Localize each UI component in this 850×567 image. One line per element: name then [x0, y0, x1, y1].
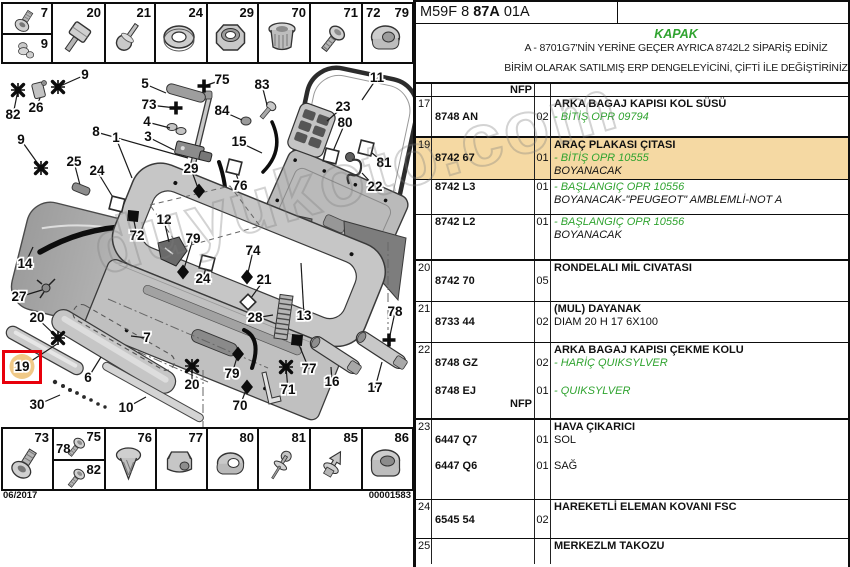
quantity: 01: [535, 215, 551, 259]
desc-line: HAREKETLİ ELEMAN KOVANI FSC: [554, 501, 848, 514]
desc-line: MERKEZLM TAKOZU: [554, 540, 848, 553]
description: RONDELALI MİL CIVATASI: [551, 261, 848, 301]
quantity: 02: [535, 302, 551, 342]
parts-row-8748-EJ[interactable]: 8748 EJNFP01- QUIKSYLVER: [416, 384, 848, 420]
callout-79[interactable]: 79: [185, 231, 200, 246]
callout-25[interactable]: 25: [66, 154, 82, 169]
desc-line: BOYANACAK-"PEUGEOT" AMBLEMLİ-NOT A: [554, 194, 848, 207]
part-number: 8742 67: [432, 138, 535, 179]
sheet-number: 00001583: [369, 490, 411, 501]
parts-table: NFP178748 AN02ARKA BAGAJ KAPISI KOL SÜSÜ…: [416, 84, 848, 564]
desc-line: (MUL) DAYANAK: [554, 303, 848, 316]
part-number: 8742 L2: [432, 215, 535, 259]
fastener-label-29: 29: [240, 5, 254, 20]
star-marker-icon: [279, 360, 293, 374]
callout-12[interactable]: 12: [156, 212, 171, 227]
parts-row-6447-Q6[interactable]: 6447 Q601SAĞ: [416, 459, 848, 500]
ref-number: [416, 384, 432, 418]
upper-small-arc: [263, 122, 277, 172]
part-number: 8742 L3: [432, 180, 535, 214]
ref-number: 25: [416, 539, 432, 564]
callout-9[interactable]: 9: [81, 67, 89, 82]
desc-line: RONDELALI MİL CIVATASI: [554, 262, 848, 275]
bushing-icon: [372, 450, 400, 476]
quantity: 01: [535, 138, 551, 179]
description: ARKA BAGAJ KAPISI KOL SÜSÜ- BİTİŞ OPR 09…: [551, 97, 848, 136]
fastener-label-7: 7: [41, 5, 48, 20]
fastener-label-75: 75: [87, 429, 101, 444]
osq-marker-icon: [323, 148, 339, 164]
parts-row-8742-70[interactable]: 208742 7005RONDELALI MİL CIVATASI: [416, 261, 848, 302]
desc-line: - BİTİŞ OPR 09794: [554, 111, 848, 124]
desc-line: DIAM 20 H 17 6X100: [554, 316, 848, 329]
fastener-label-81: 81: [292, 430, 306, 445]
desc-line: - QUIKSYLVER: [554, 385, 848, 398]
part-number: 8748 GZ: [432, 343, 535, 384]
desc-line: SAĞ: [554, 460, 848, 473]
panel-divider: [413, 0, 416, 567]
fastener-label-73: 73: [35, 430, 49, 445]
ref-number: 22: [416, 343, 432, 384]
part-number: 8742 70: [432, 261, 535, 301]
grommet-icon: [217, 453, 244, 474]
callout-30[interactable]: 30: [29, 397, 44, 412]
quantity: 01: [535, 459, 551, 499]
description: - QUIKSYLVER: [551, 384, 848, 418]
callout-83[interactable]: 83: [254, 77, 270, 92]
description: MERKEZLM TAKOZU: [551, 539, 848, 564]
part-number: 8748 AN: [432, 97, 535, 136]
callout-4[interactable]: 4: [143, 114, 151, 129]
callout-72[interactable]: 72: [129, 228, 144, 243]
part-number: 8748 EJNFP: [432, 384, 535, 418]
star-marker-icon: [185, 359, 199, 373]
callout-70[interactable]: 70: [232, 398, 247, 413]
part-number: 6447 Q6: [432, 459, 535, 499]
desc-line: - BAŞLANGIÇ OPR 10556: [554, 216, 848, 229]
callout-8[interactable]: 8: [92, 124, 100, 139]
callout-19[interactable]: 19: [14, 359, 29, 374]
hinge-bracket-shape: [31, 81, 46, 99]
fastener-label-9: 9: [41, 36, 48, 51]
code-suffix: 01A: [500, 4, 530, 20]
bar-marker-icon: [71, 182, 91, 196]
ref-number: 24: [416, 500, 432, 538]
osq-marker-icon: [199, 255, 215, 271]
ref-number: 19: [416, 138, 432, 179]
callout-24[interactable]: 24: [195, 271, 211, 286]
exploded-diagram-panel: 79202124297071727973757882767780818586 1…: [0, 0, 415, 567]
description: - BAŞLANGIÇ OPR 10556BOYANACAK-"PEUGEOT"…: [551, 180, 848, 214]
catalog-code: M59F 8 87A 01A: [416, 2, 618, 23]
quantity: 01: [535, 384, 551, 418]
star-marker-icon: [11, 83, 25, 97]
fastener-label-77: 77: [189, 430, 203, 445]
ref-number: 17: [416, 97, 432, 136]
flange-icon: [372, 26, 400, 49]
callout-26[interactable]: 26: [28, 100, 44, 115]
description: HAVA ÇIKARICISOL: [551, 420, 848, 459]
callout-15[interactable]: 15: [231, 134, 247, 149]
parts-list-panel: M59F 8 87A 01A KAPAK A - 8701G7'NİN YERİ…: [416, 0, 850, 567]
ref-number: [416, 215, 432, 259]
description: SAĞ: [551, 459, 848, 499]
parts-row-6447-Q7[interactable]: 236447 Q701HAVA ÇIKARICISOL: [416, 420, 848, 459]
ref-number: 23: [416, 420, 432, 459]
ref-number: 20: [416, 261, 432, 301]
part-number: 6545 54: [432, 500, 535, 538]
desc-line: BOYANACAK: [554, 229, 848, 242]
star-marker-icon: [51, 331, 65, 345]
description: ARAÇ PLAKASI ÇITASI- BİTİŞ OPR 10555BOYA…: [551, 138, 848, 179]
quantity: 05: [535, 261, 551, 301]
osq-marker-icon: [109, 196, 125, 212]
desc-line: - BAŞLANGIÇ OPR 10556: [554, 181, 848, 194]
parts-row-6545-54[interactable]: 246545 5402HAREKETLİ ELEMAN KOVANI FSC: [416, 500, 848, 539]
callout-74[interactable]: 74: [245, 243, 261, 258]
quantity: 01: [535, 420, 551, 459]
fastener-label-80: 80: [240, 430, 254, 445]
quantity: 02: [535, 343, 551, 384]
part-number: [432, 539, 535, 564]
callout-16[interactable]: 16: [324, 374, 340, 389]
ref-number: [416, 459, 432, 499]
fastener-label-24: 24: [189, 5, 204, 20]
osq-marker-icon: [226, 159, 242, 175]
washer-icon: [164, 26, 194, 51]
callout-1[interactable]: 1: [112, 130, 120, 145]
description: ARKA BAGAJ KAPISI ÇEKME KOLU- HARİÇ QUIK…: [551, 343, 848, 384]
callout-17[interactable]: 17: [367, 380, 382, 395]
callout-28[interactable]: 28: [247, 310, 263, 325]
callout-81[interactable]: 81: [376, 155, 392, 170]
callout-75[interactable]: 75: [214, 72, 230, 87]
star-marker-icon: [51, 80, 65, 94]
nfp-header-row: NFP: [416, 84, 848, 97]
ref-cell: [416, 84, 432, 96]
ref-number: [416, 180, 432, 214]
callout-5[interactable]: 5: [141, 76, 149, 91]
fsq-marker-icon: [127, 210, 139, 222]
cross-marker-icon: [170, 102, 183, 115]
callout-80[interactable]: 80: [337, 115, 352, 130]
leader-line: [96, 132, 188, 158]
qty-cell: [535, 84, 551, 96]
description: HAREKETLİ ELEMAN KOVANI FSC: [551, 500, 848, 538]
callout-13[interactable]: 13: [296, 308, 312, 323]
fastener-label-85: 85: [344, 430, 358, 445]
fastener-label-21: 21: [137, 5, 151, 20]
desc-line: ARKA BAGAJ KAPISI ÇEKME KOLU: [554, 344, 848, 357]
callout-27[interactable]: 27: [11, 289, 26, 304]
quantity: 02: [535, 97, 551, 136]
fsq-marker-icon: [291, 334, 303, 346]
desc-line: BOYANACAK: [554, 165, 848, 178]
callout-24[interactable]: 24: [89, 163, 105, 178]
callout-20[interactable]: 20: [29, 310, 44, 325]
ref-number: 21: [416, 302, 432, 342]
title-note-1: A - 8701G7'NİN YERİNE GEÇER AYRICA 8742L…: [504, 42, 848, 54]
screw-83-shape: [258, 100, 278, 121]
parts-row-8748-GZ[interactable]: 228748 GZ02ARKA BAGAJ KAPISI ÇEKME KOLU-…: [416, 343, 848, 384]
title-block: KAPAK A - 8701G7'NİN YERİNE GEÇER AYRICA…: [416, 24, 848, 84]
quantity: 01: [535, 180, 551, 214]
callout-6[interactable]: 6: [84, 370, 92, 385]
callout-29[interactable]: 29: [183, 161, 198, 176]
desc-line: HAVA ÇIKARICI: [554, 421, 848, 434]
tailgate-exploded-diagram: 79202124297071727973757882767780818586 1…: [0, 0, 415, 567]
part-number: 8733 44: [432, 302, 535, 342]
callout-23[interactable]: 23: [335, 99, 351, 114]
fastener-label-20: 20: [87, 5, 101, 20]
callout-21[interactable]: 21: [256, 272, 272, 287]
washers-shape: [167, 124, 186, 135]
callout-78[interactable]: 78: [387, 304, 403, 319]
parts-catalog-page: { "watermark": {"text": "duyukoto.com"},…: [0, 0, 850, 567]
callout-76[interactable]: 76: [232, 178, 248, 193]
callout-77[interactable]: 77: [301, 361, 316, 376]
desc-cell: [551, 84, 848, 96]
description: (MUL) DAYANAKDIAM 20 H 17 6X100: [551, 302, 848, 342]
sheet-date: 06/2017: [3, 490, 37, 501]
parts-row-8742-L3[interactable]: 8742 L301- BAŞLANGIÇ OPR 10556BOYANACAK-…: [416, 180, 848, 215]
callout-11[interactable]: 11: [370, 70, 385, 85]
callout-10[interactable]: 10: [118, 400, 133, 415]
description: - BAŞLANGIÇ OPR 10556BOYANACAK: [551, 215, 848, 259]
star-marker-icon: [34, 161, 48, 175]
desc-line: ARKA BAGAJ KAPISI KOL SÜSÜ: [554, 98, 848, 111]
fastener-label-70: 70: [292, 5, 306, 20]
callout-7[interactable]: 7: [143, 330, 151, 345]
quantity: 02: [535, 500, 551, 538]
cross-marker-icon: [198, 80, 211, 93]
plasticnut-icon: [168, 452, 192, 472]
desc-line: - HARİÇ QUIKSYLVER: [554, 357, 848, 370]
diagram-artwork: [4, 62, 415, 427]
fastener-label-82: 82: [87, 462, 101, 477]
callout-73[interactable]: 73: [141, 97, 157, 112]
nfp-flag: NFP: [435, 398, 534, 411]
code-row: M59F 8 87A 01A: [416, 2, 848, 24]
parts-row-8748-AN[interactable]: 178748 AN02ARKA BAGAJ KAPISI KOL SÜSÜ- B…: [416, 97, 848, 138]
desc-line: ARAÇ PLAKASI ÇITASI: [554, 139, 848, 152]
callout-9[interactable]: 9: [17, 132, 25, 147]
hexnut-icon: [217, 25, 245, 50]
parts-row-8742-L2[interactable]: 8742 L201- BAŞLANGIÇ OPR 10556BOYANACAK: [416, 215, 848, 261]
title-note-2: BİRİM OLARAK SATILMIŞ ERP DENGELEYİCİNİ,…: [504, 62, 848, 74]
callout-84[interactable]: 84: [214, 103, 230, 118]
section-title: KAPAK: [504, 24, 848, 41]
code-prefix: M59F 8: [420, 4, 473, 20]
osq-marker-icon: [358, 140, 374, 156]
callout-20[interactable]: 20: [184, 377, 199, 392]
callout-14[interactable]: 14: [17, 256, 33, 271]
part-number: 6447 Q7: [432, 420, 535, 459]
callout-79[interactable]: 79: [224, 366, 239, 381]
callout-82[interactable]: 82: [5, 107, 20, 122]
fastener-label-86: 86: [395, 430, 409, 445]
callout-22[interactable]: 22: [367, 179, 382, 194]
desc-line: - BİTİŞ OPR 10555: [554, 152, 848, 165]
fastener-label-71: 71: [344, 5, 358, 20]
parts-row-8733-44[interactable]: 218733 4402(MUL) DAYANAKDIAM 20 H 17 6X1…: [416, 302, 848, 343]
parts-row-25[interactable]: 25MERKEZLM TAKOZU: [416, 539, 848, 564]
fastener-label-72: 72: [366, 5, 380, 20]
screw-dots-row: [53, 380, 107, 409]
quantity: [535, 539, 551, 564]
cage-icon: [269, 23, 295, 50]
fastener-label-79: 79: [395, 5, 409, 20]
nfp-label: NFP: [432, 84, 535, 96]
code-bold: 87A: [473, 4, 500, 20]
desc-line: SOL: [554, 434, 848, 447]
callout-3[interactable]: 3: [144, 129, 152, 144]
callout-71[interactable]: 71: [280, 382, 296, 397]
cup-84-shape: [241, 117, 251, 125]
parts-row-8742-67[interactable]: 198742 6701ARAÇ PLAKASI ÇITASI- BİTİŞ OP…: [416, 138, 848, 180]
fastener-label-76: 76: [138, 430, 152, 445]
